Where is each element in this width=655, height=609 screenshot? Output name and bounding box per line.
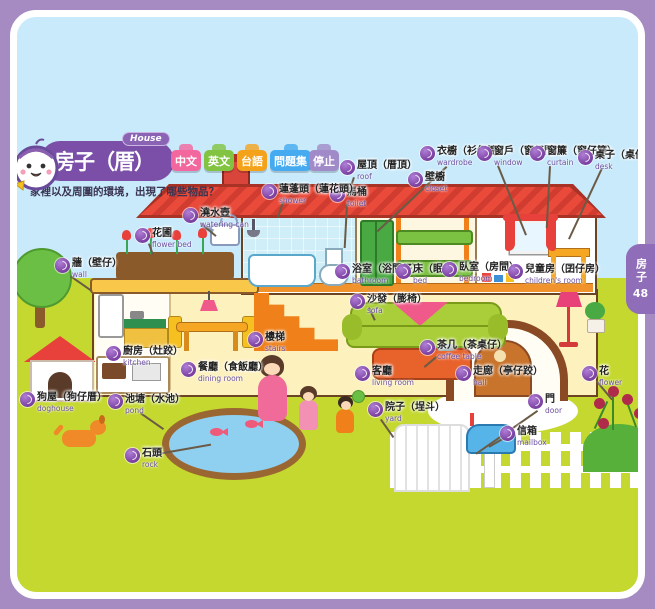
label-zh: 門 (545, 394, 562, 407)
floor-lamp-pole (567, 307, 570, 343)
label-zh: 澆水壺 (200, 208, 249, 221)
pendant-cord (208, 291, 210, 301)
boy-shirt (336, 409, 354, 433)
label-zh: 走廊（亭仔跤） (473, 366, 543, 379)
label-sofa: 沙發（膨椅）sofa (350, 294, 427, 314)
button-stop[interactable]: 停止 (309, 150, 339, 171)
label-zh: 樓梯 (265, 332, 286, 345)
audio-icon[interactable] (183, 208, 198, 223)
speaker-icon (179, 144, 193, 152)
page-title: 房子（厝） (54, 146, 154, 176)
girl-dress (299, 400, 318, 430)
label-zh: 花圃 (152, 228, 192, 241)
label-en: desk (595, 163, 645, 171)
label-en: closet (425, 185, 447, 193)
label-en: wall (72, 271, 122, 279)
label-flower-bed: 花圃flower bed (135, 228, 192, 248)
sofa-armrest (488, 314, 508, 340)
fish-tail (221, 428, 228, 436)
label-dining-room: 餐廳（食飯廳）dining room (181, 362, 268, 382)
label-en: children's room (525, 277, 605, 285)
curtain-valance (503, 214, 558, 221)
scene: 屋頂（厝頂）roof 衣櫥（衫仔櫥）wardrobe 窗戶（窗仔門）window… (10, 10, 645, 599)
label-en: watering can (200, 221, 249, 229)
label-zh: 餐廳（食飯廳） (198, 362, 268, 375)
label-zh: 狗屋（狗仔厝） (37, 392, 107, 405)
chapter-tab[interactable]: 房子 48 (626, 244, 655, 314)
speaker-icon (317, 144, 331, 152)
speaker-icon (212, 144, 226, 152)
label-zh: 桌子（桌仔） (595, 150, 645, 163)
audio-icon[interactable] (530, 146, 545, 161)
kitchen-cabinet (124, 328, 168, 348)
audio-icon[interactable] (106, 346, 121, 361)
button-label: 中文 (175, 153, 197, 169)
ball-icon (352, 390, 365, 403)
label-living-room: 客廳living room (355, 366, 414, 386)
audio-icon[interactable] (355, 366, 370, 381)
audio-icon[interactable] (582, 366, 597, 381)
label-zh: 牆（壁仔） (72, 258, 122, 271)
audio-icon[interactable] (181, 362, 196, 377)
label-desk: 桌子（桌仔）desk (578, 150, 645, 170)
button-label: 英文 (208, 153, 230, 169)
audio-icon[interactable] (262, 184, 277, 199)
label-zh: 花 (599, 366, 622, 379)
terrace-ledge (90, 278, 259, 294)
label-rock: 石頭rock (125, 448, 162, 468)
mascot-icon (12, 138, 60, 196)
audio-icon[interactable] (350, 294, 365, 309)
dining-table-leg (184, 331, 189, 351)
audio-icon[interactable] (335, 264, 350, 279)
label-en: flower bed (152, 241, 192, 249)
label-stairs: 樓梯stairs (248, 332, 286, 352)
label-zh: 客廳 (372, 366, 414, 379)
label-pond: 池塘（水池）pond (108, 394, 185, 414)
dog-body (62, 430, 96, 447)
audio-icon[interactable] (528, 394, 543, 409)
label-zh: 兒童房（囝仔房） (525, 264, 605, 277)
audio-icon[interactable] (500, 426, 515, 441)
label-zh: 信箱 (517, 426, 547, 439)
speaker-icon (284, 144, 298, 152)
label-zh: 廚房（灶跤） (123, 346, 183, 359)
button-label: 停止 (313, 153, 335, 169)
audio-icon[interactable] (368, 402, 383, 417)
floor-lamp-base (559, 342, 578, 347)
plant-pot (587, 319, 605, 333)
label-en: coffee table (437, 353, 507, 361)
label-en: mailbox (517, 439, 547, 447)
boy-face (341, 401, 351, 410)
audio-icon[interactable] (456, 366, 471, 381)
label-yard: 院子（埕斗）yard (368, 402, 445, 422)
label-zh: 石頭 (142, 448, 162, 461)
label-en: yard (385, 415, 445, 423)
label-coffee-table: 茶几（茶桌仔）coffee table (420, 340, 507, 360)
label-watering-can: 澆水壺watering can (183, 208, 249, 228)
audio-icon[interactable] (442, 262, 457, 277)
curtain-left (505, 218, 515, 251)
button-quiz[interactable]: 問題集 (270, 150, 311, 171)
audio-icon[interactable] (420, 146, 435, 161)
audio-icon[interactable] (396, 264, 411, 279)
flower-stem (126, 238, 128, 254)
label-zh: 茶几（茶桌仔） (437, 340, 507, 353)
fish-tail (256, 420, 263, 428)
flower-planter (116, 252, 234, 280)
label-closet: 壁櫥closet (408, 172, 447, 192)
button-mandarin[interactable]: 中文 (171, 150, 201, 171)
tulip-bloom (122, 230, 131, 240)
audio-icon[interactable] (340, 160, 355, 175)
button-label: 問題集 (274, 153, 307, 169)
flower-bush (583, 424, 645, 472)
page-number: 48 (633, 287, 648, 300)
label-zh: 池塘（水池） (125, 394, 185, 407)
audio-icon[interactable] (420, 340, 435, 355)
audio-icon[interactable] (55, 258, 70, 273)
scene-card: 屋頂（厝頂）roof 衣櫥（衫仔櫥）wardrobe 窗戶（窗仔門）window… (10, 10, 645, 599)
tree-icon (12, 248, 72, 308)
mailbox-post (484, 450, 495, 488)
label-en: stairs (265, 345, 286, 353)
label-en: sofa (367, 307, 427, 315)
flower-stem (202, 236, 204, 254)
audio-icon[interactable] (125, 448, 140, 463)
label-en: kitchen (123, 359, 183, 367)
speaker-icon (245, 144, 259, 152)
label-en: rock (142, 461, 162, 469)
kitchen-counter (124, 319, 166, 328)
label-zh: 壁櫥 (425, 172, 447, 185)
dog-ear (99, 415, 105, 424)
page: 屋頂（厝頂）roof 衣櫥（衫仔櫥）wardrobe 窗戶（窗仔門）window… (0, 0, 655, 609)
doghouse-roof (24, 336, 96, 362)
audio-icon[interactable] (508, 264, 523, 279)
label-zh: 蓮蓬頭（蓮花頭） (279, 184, 359, 197)
label-en: pond (125, 407, 185, 415)
audio-icon[interactable] (135, 228, 150, 243)
label-en: living room (372, 379, 414, 387)
sofa-armrest (342, 314, 362, 340)
girl-face (303, 392, 314, 401)
label-doghouse: 狗屋（狗仔厝）doghouse (20, 392, 107, 412)
label-en: door (545, 407, 562, 415)
label-door: 門door (528, 394, 562, 414)
flower-bloom (622, 394, 633, 405)
title-english-pill: House (122, 132, 170, 146)
label-hall: 走廊（亭仔跤）hall (456, 366, 543, 386)
plant-leaves (585, 302, 605, 320)
audio-icon[interactable] (408, 172, 423, 187)
garden-gate (394, 424, 470, 492)
flower-bloom (598, 418, 609, 429)
label-zh: 沙發（膨椅） (367, 294, 427, 307)
label-childrens-room: 兒童房（囝仔房）children's room (508, 264, 605, 284)
label-shower: 蓮蓬頭（蓮花頭）shower (262, 184, 359, 204)
label-en: shower (279, 197, 359, 205)
button-label: 台語 (241, 153, 263, 169)
label-roof: 屋頂（厝頂）roof (340, 160, 417, 180)
audio-icon[interactable] (248, 332, 263, 347)
button-english[interactable]: 英文 (204, 150, 234, 171)
audio-icon[interactable] (108, 394, 123, 409)
audio-icon[interactable] (578, 150, 593, 165)
label-en: doghouse (37, 405, 107, 413)
label-flower: 花flower (582, 366, 622, 386)
label-en: dining room (198, 375, 268, 383)
audio-icon[interactable] (20, 392, 35, 407)
label-en: hall (473, 379, 543, 387)
label-zh: 院子（埕斗） (385, 402, 445, 415)
button-taiwanese[interactable]: 台語 (237, 150, 267, 171)
label-en: flower (599, 379, 622, 387)
dining-table-leg (233, 331, 238, 351)
dining-chair (168, 316, 182, 348)
label-wall: 牆（壁仔）wall (55, 258, 122, 278)
cooking-pot (130, 311, 144, 319)
label-kitchen: 廚房（灶跤）kitchen (106, 346, 183, 366)
flower-bloom (634, 408, 645, 419)
bathtub (248, 254, 316, 287)
bunk-bed-top (396, 230, 473, 245)
fridge (98, 294, 124, 338)
flower-bloom (594, 398, 605, 409)
audio-icon[interactable] (477, 146, 492, 161)
label-mailbox: 信箱mailbox (500, 426, 547, 446)
chapter-tab-title: 房子 (633, 258, 649, 284)
label-zh: 屋頂（厝頂） (357, 160, 417, 173)
